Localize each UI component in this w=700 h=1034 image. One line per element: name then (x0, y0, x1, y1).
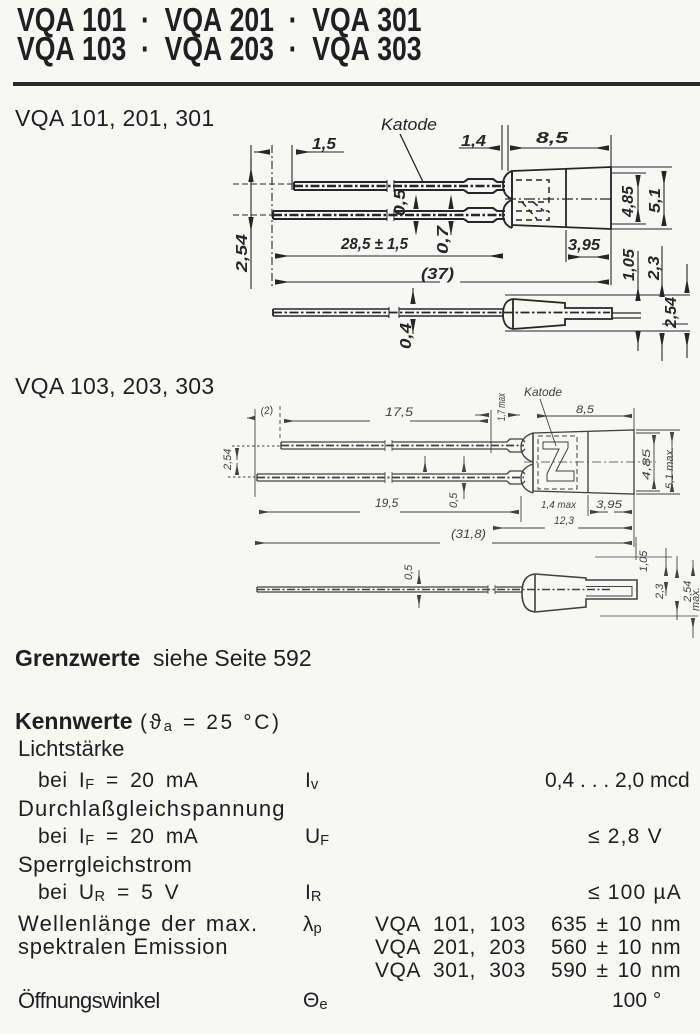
svg-text:5,1: 5,1 (647, 188, 664, 213)
svg-text:28,5 ± 1,5: 28,5 ± 1,5 (340, 236, 409, 253)
svg-text:2,3: 2,3 (646, 256, 663, 281)
svg-text:2,54: 2,54 (663, 297, 680, 329)
svg-text:max.: max. (690, 587, 700, 611)
svg-text:Katode: Katode (524, 385, 562, 399)
svg-text:5,1 max.: 5,1 max. (664, 447, 676, 489)
svg-text:19,5: 19,5 (375, 496, 399, 510)
svg-text:1,7 max: 1,7 max (496, 393, 508, 421)
svg-text:3,95: 3,95 (596, 499, 623, 511)
svg-text:8,5: 8,5 (536, 130, 570, 147)
svg-text:12,3: 12,3 (554, 515, 575, 527)
svg-text:2,54: 2,54 (222, 449, 234, 471)
svg-text:0,5: 0,5 (403, 564, 415, 580)
svg-text:0,5: 0,5 (392, 188, 409, 216)
svg-text:(31,8): (31,8) (451, 527, 486, 541)
svg-text:(37): (37) (421, 266, 454, 283)
svg-text:4,85: 4,85 (620, 185, 637, 218)
svg-text:(2): (2) (259, 404, 274, 418)
svg-text:2,3: 2,3 (654, 583, 666, 600)
svg-text:0,5: 0,5 (448, 492, 460, 508)
svg-text:Katode: Katode (381, 115, 437, 134)
svg-text:1,4 max: 1,4 max (541, 499, 577, 511)
svg-text:1,05: 1,05 (621, 248, 638, 281)
svg-text:8,5: 8,5 (576, 404, 595, 416)
svg-text:1,5: 1,5 (312, 136, 337, 153)
svg-text:3,95: 3,95 (568, 237, 601, 254)
svg-text:1,05: 1,05 (638, 550, 650, 572)
svg-text:4,85: 4,85 (641, 448, 653, 480)
svg-text:0,7: 0,7 (435, 225, 452, 254)
svg-text:17,5: 17,5 (385, 405, 413, 419)
svg-text:2,54: 2,54 (234, 234, 251, 273)
